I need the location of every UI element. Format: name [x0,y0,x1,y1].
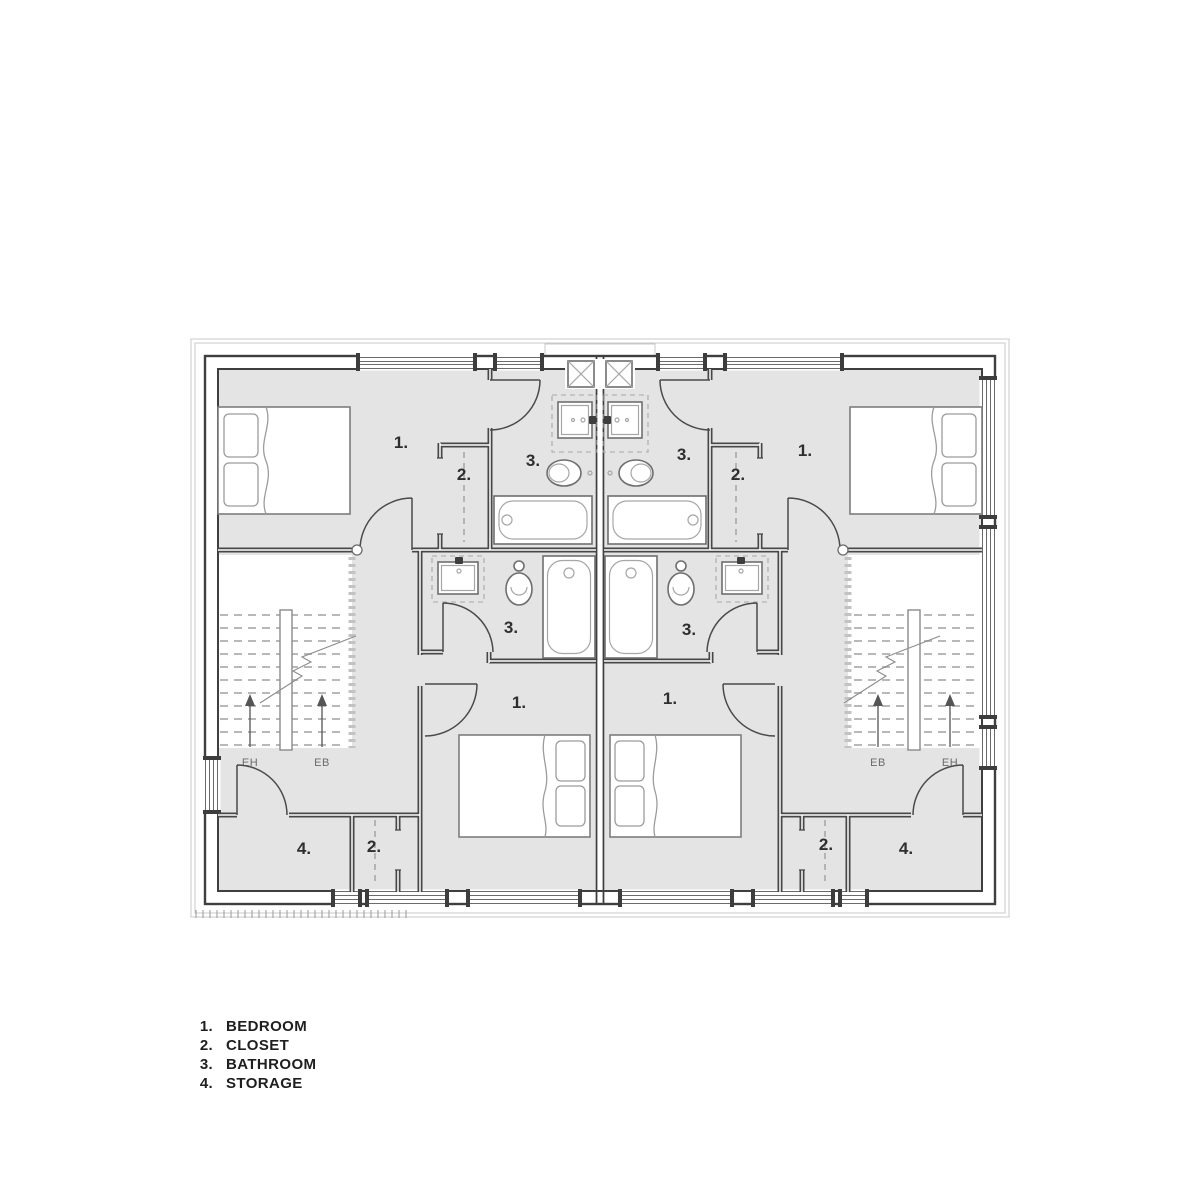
window [838,889,869,907]
legend-number: 4. [200,1075,213,1092]
room-label-storage: 4. [297,839,311,858]
bathtub-icon [494,496,592,544]
toilet-tank-icon [514,561,524,571]
room-label-closet: 2. [731,465,745,484]
room-label-bathroom: 3. [526,451,540,470]
room-label-bedroom: 1. [798,441,812,460]
window [331,889,362,907]
service-shafts [565,359,635,389]
room-label-bathroom: 3. [504,618,518,637]
floor-plan-drawing: EH EB EB EH 1. 2. 3. 3. 2. 1. [0,0,1200,1200]
legend-label: BEDROOM [226,1018,307,1035]
toilet-icon [668,573,694,605]
stair-rail [908,610,920,750]
legend-label: BATHROOM [226,1056,316,1073]
room-label-closet: 2. [367,837,381,856]
room-label-closet: 2. [819,835,833,854]
room-label-bedroom: 1. [663,689,677,708]
bed-bottom-right [610,735,741,837]
faucet-icon [604,416,611,424]
floor-plan-page: EH EB EB EH 1. 2. 3. 3. 2. 1. [0,0,1200,1200]
legend: 1. BEDROOM 2. CLOSET 3. BATHROOM 4. STOR… [200,1018,317,1092]
sink-icon [438,562,478,594]
newel-post [352,545,362,555]
legend-number: 3. [200,1056,213,1073]
sink-icon [722,562,762,594]
toilet-icon [506,573,532,605]
room-label-bathroom: 3. [682,620,696,639]
window [979,525,997,719]
room-label-closet: 2. [457,465,471,484]
window [356,353,477,371]
faucet-icon [589,416,596,424]
window [656,353,707,371]
window [493,353,544,371]
faucet-icon [737,557,745,564]
toilet-icon [547,460,581,486]
stair-rail [280,610,292,750]
newel-post [838,545,848,555]
window [365,889,449,907]
legend-label: STORAGE [226,1075,303,1092]
window [203,756,221,814]
window [466,889,582,907]
window [723,353,844,371]
stair-label: EB [314,757,330,769]
room-label-bathroom: 3. [677,445,691,464]
window [751,889,835,907]
room-label-bedroom: 1. [394,433,408,452]
bathtub-icon [608,496,706,544]
stair-label: EB [870,757,886,769]
room-label-storage: 4. [899,839,913,858]
bed-top-left [218,407,350,514]
legend-label: CLOSET [226,1037,289,1054]
window [618,889,734,907]
room-label-bedroom: 1. [512,693,526,712]
faucet-icon [455,557,463,564]
legend-number: 2. [200,1037,213,1054]
window [979,725,997,770]
bathtub-icon [543,556,595,658]
bed-bottom-left [459,735,590,837]
toilet-icon [619,460,653,486]
toilet-tank-icon [676,561,686,571]
bathtub-icon [605,556,657,658]
legend-number: 1. [200,1018,213,1035]
bed-top-right [850,407,982,514]
